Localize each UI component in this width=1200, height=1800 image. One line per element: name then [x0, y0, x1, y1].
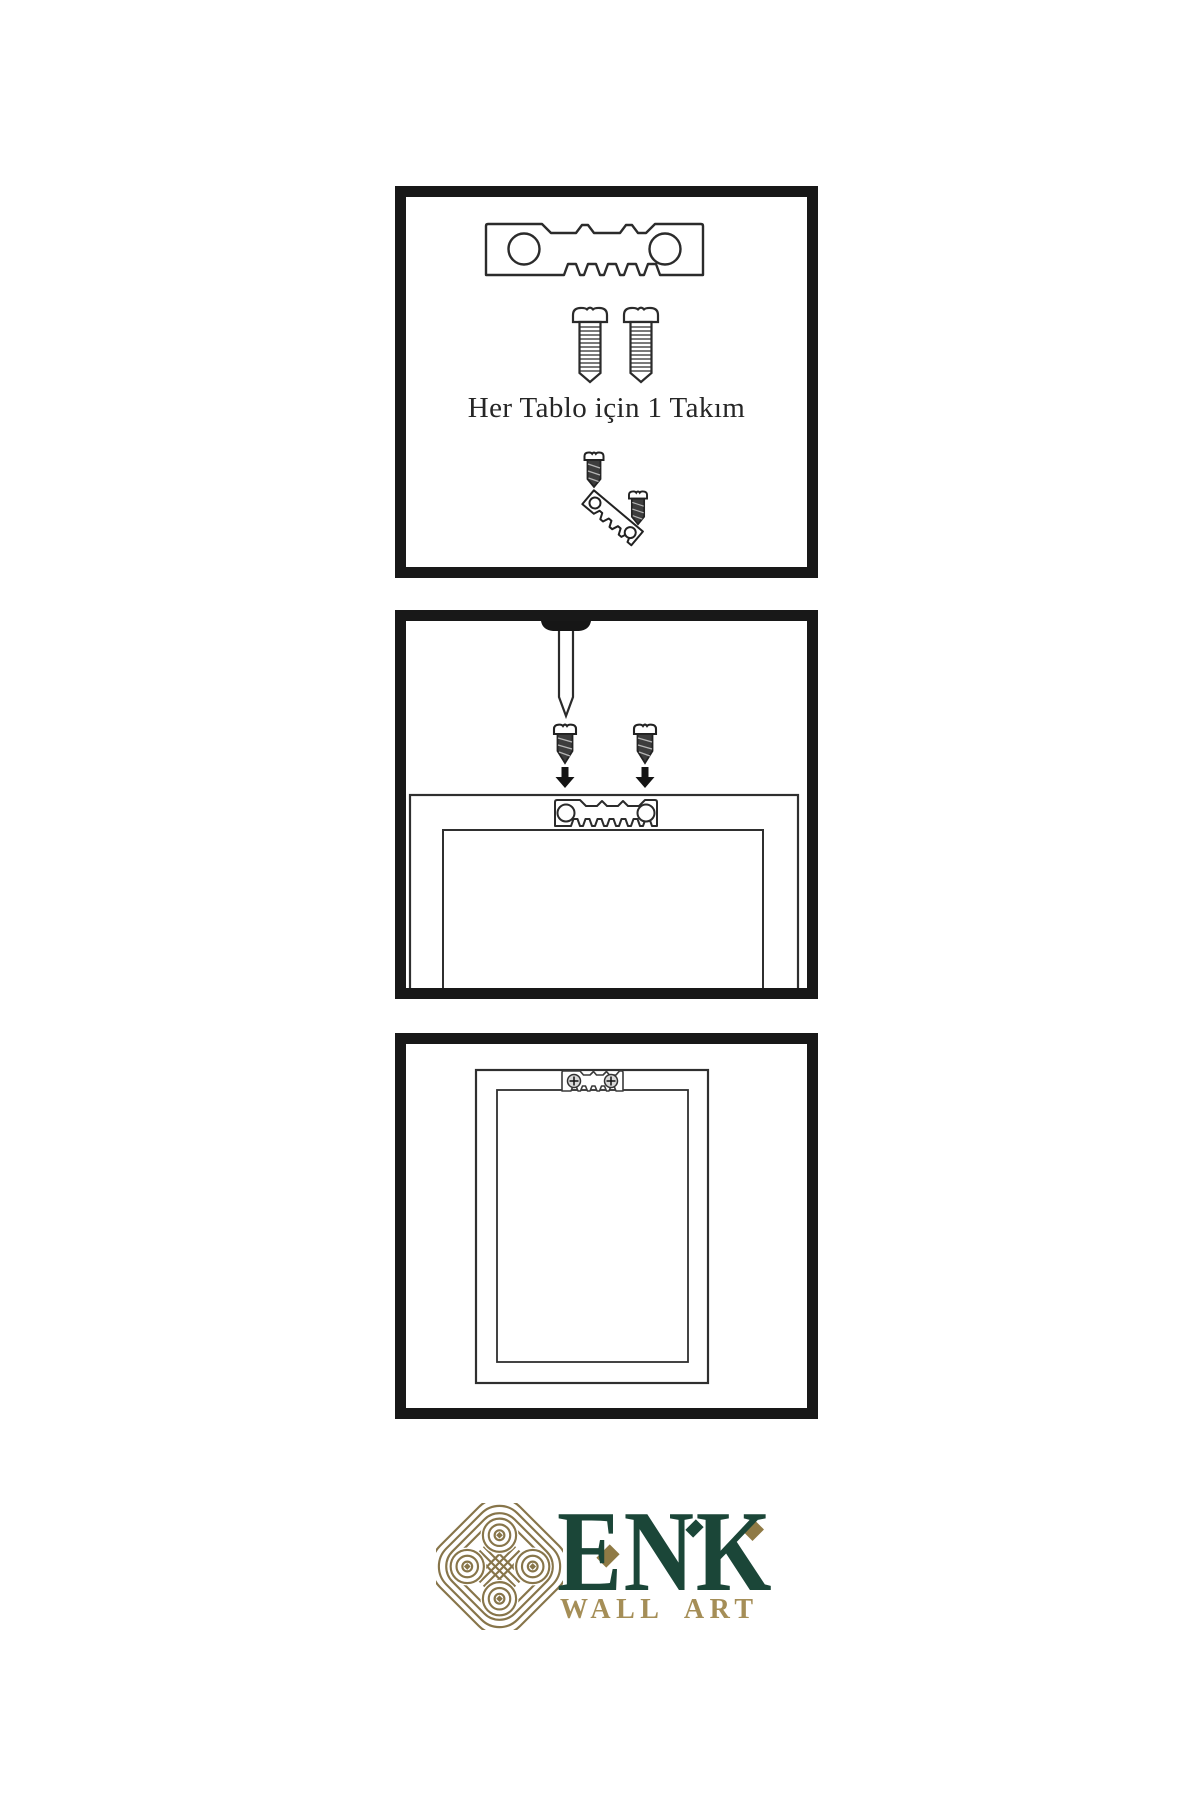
arrow-down-icon	[636, 767, 655, 788]
mounting-illustration	[406, 621, 807, 988]
arrow-down-icon	[556, 767, 575, 788]
screw-icon	[573, 308, 607, 382]
screw-icon	[624, 308, 658, 382]
instruction-sheet: Her Tablo için 1 Takım	[0, 0, 1200, 1800]
installed-sawtooth-hanger-icon	[562, 1071, 623, 1091]
result-illustration	[406, 1044, 807, 1408]
screw-icon	[554, 725, 576, 763]
kit-caption: Her Tablo için 1 Takım	[406, 391, 807, 425]
hardware-kit-illustration	[406, 197, 807, 567]
panel-hanging-result	[395, 1033, 818, 1419]
panel-wall-mounting	[395, 610, 818, 999]
sawtooth-hanger-icon	[555, 800, 657, 826]
brand-tagline: WALL ART	[560, 1594, 759, 1626]
tilted-hanger-with-screws-icon	[582, 452, 647, 545]
nail-icon	[541, 621, 591, 716]
frame-back-icon	[476, 1070, 708, 1383]
brand-name: ENK	[557, 1494, 773, 1610]
knot-logo-icon	[436, 1503, 563, 1630]
sawtooth-hanger-icon	[486, 224, 703, 275]
panel-hardware-kit: Her Tablo için 1 Takım	[395, 186, 818, 578]
screw-icon	[634, 725, 656, 763]
